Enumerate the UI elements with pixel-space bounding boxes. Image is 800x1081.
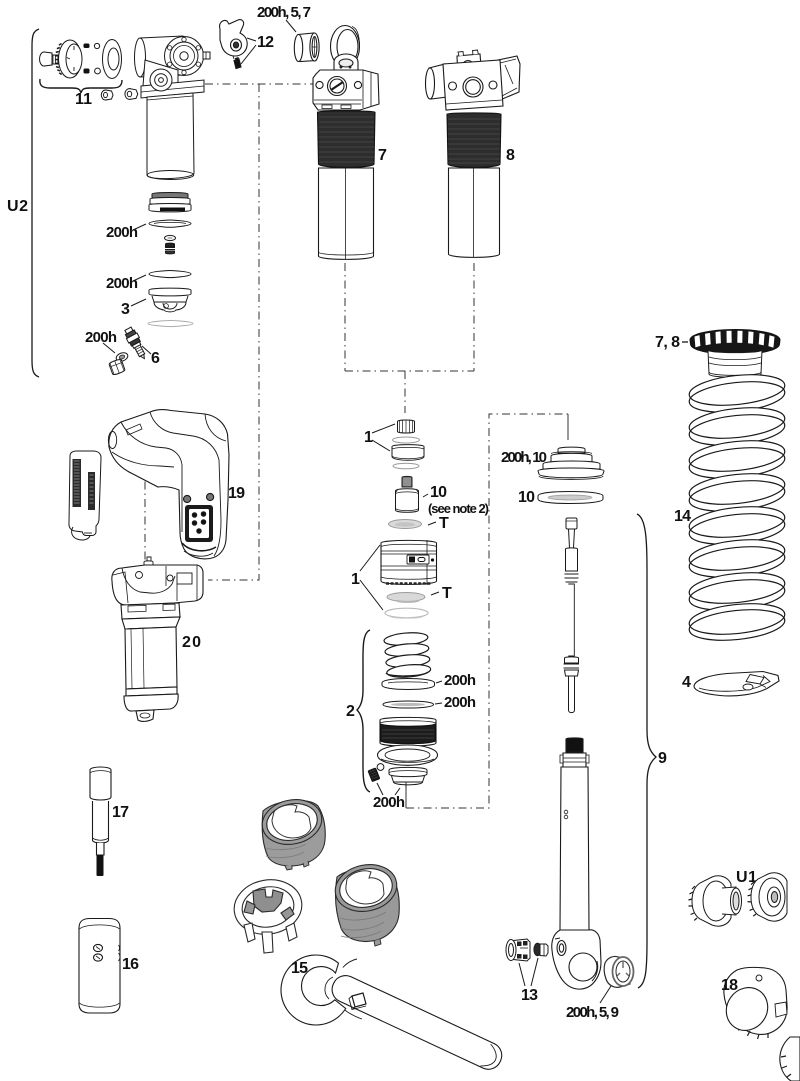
svg-text:200h: 200h bbox=[444, 672, 476, 689]
svg-text:200h: 200h bbox=[444, 694, 476, 711]
svg-text:10: 10 bbox=[518, 489, 535, 506]
svg-text:200h, 5, 9: 200h, 5, 9 bbox=[566, 1004, 619, 1021]
svg-text:T: T bbox=[439, 515, 449, 532]
svg-text:20: 20 bbox=[182, 634, 201, 651]
svg-text:18: 18 bbox=[721, 977, 738, 994]
svg-text:17: 17 bbox=[112, 804, 129, 821]
svg-text:200h: 200h bbox=[85, 329, 117, 346]
svg-text:3: 3 bbox=[121, 301, 130, 318]
svg-text:200h, 5, 7: 200h, 5, 7 bbox=[257, 4, 311, 21]
svg-text:1: 1 bbox=[351, 571, 360, 588]
svg-text:15: 15 bbox=[291, 960, 308, 977]
svg-text:9: 9 bbox=[658, 750, 667, 767]
svg-text:12: 12 bbox=[257, 34, 274, 51]
svg-text:8: 8 bbox=[506, 147, 515, 164]
svg-text:16: 16 bbox=[122, 956, 139, 973]
svg-text:1: 1 bbox=[364, 429, 373, 446]
svg-text:13: 13 bbox=[521, 987, 538, 1004]
svg-text:7, 8: 7, 8 bbox=[655, 334, 680, 351]
svg-text:4: 4 bbox=[682, 674, 691, 691]
svg-text:2: 2 bbox=[346, 703, 355, 720]
svg-text:U2: U2 bbox=[7, 198, 28, 215]
svg-text:(see note 2): (see note 2) bbox=[428, 501, 489, 516]
svg-text:10: 10 bbox=[430, 484, 447, 501]
svg-text:200h: 200h bbox=[106, 224, 138, 241]
svg-text:T: T bbox=[442, 585, 452, 602]
svg-text:7: 7 bbox=[378, 147, 387, 164]
svg-text:14: 14 bbox=[674, 508, 691, 525]
svg-text:6: 6 bbox=[151, 350, 160, 367]
svg-text:19: 19 bbox=[228, 485, 245, 502]
svg-text:200h, 10: 200h, 10 bbox=[501, 449, 547, 466]
svg-text:11: 11 bbox=[75, 91, 92, 108]
svg-text:200h: 200h bbox=[106, 275, 138, 292]
svg-text:200h: 200h bbox=[373, 794, 405, 811]
